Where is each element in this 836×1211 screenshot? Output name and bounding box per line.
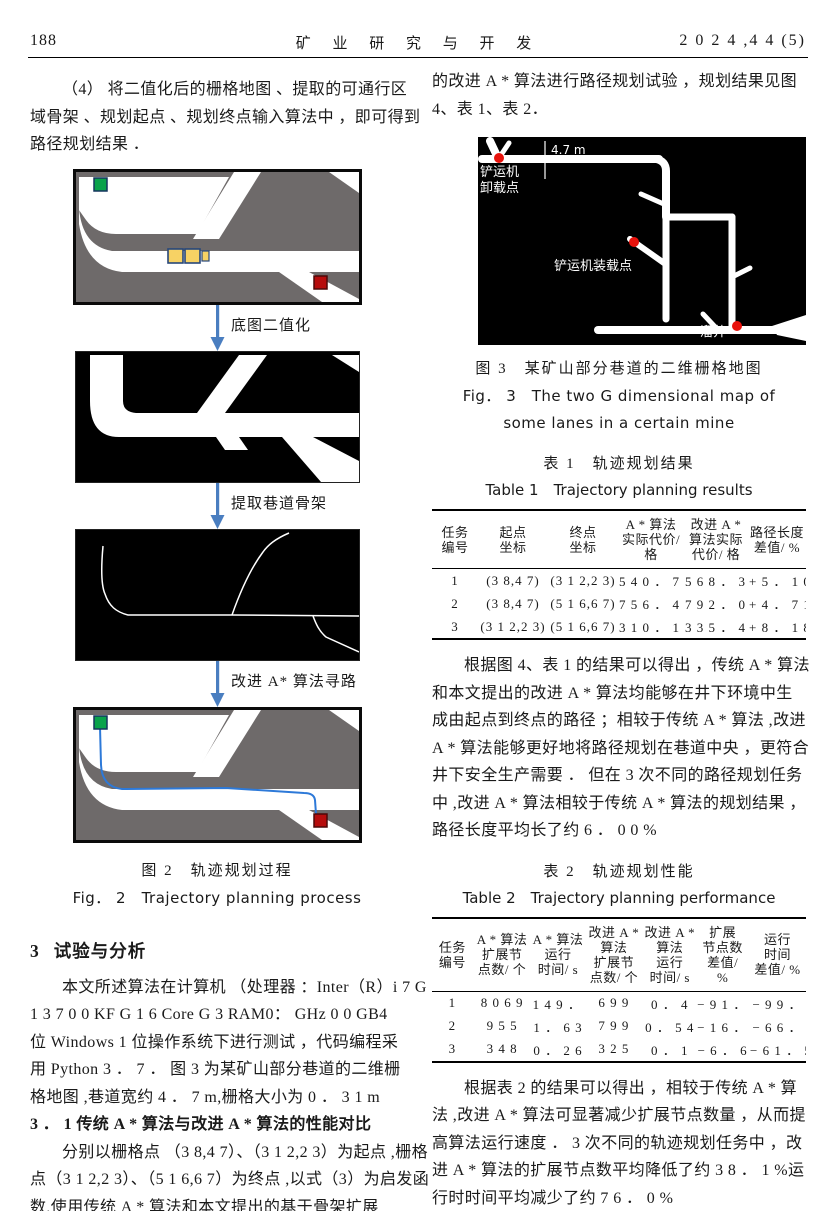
vehicle-icon bbox=[168, 249, 209, 263]
table-cell: 3 1 0 ． 1 0 bbox=[618, 615, 684, 639]
table-cell: − 9 1 ． 3 bbox=[696, 991, 749, 1015]
table-cell: 0 ． 1 bbox=[643, 1038, 696, 1062]
text-line: 的改进 A * 算法进行路径规划试验 ，规划结果见图 bbox=[432, 68, 806, 96]
text-line: 中 ,改进 A * 算法相较于传统 A * 算法的规划结果 ， bbox=[432, 790, 806, 818]
table-cell: 1 bbox=[432, 991, 473, 1015]
table-cell: − 6 1 ． 5 bbox=[749, 1038, 806, 1062]
text-line: A * 算法能够更好地将路径规划在巷道中央 ，更符合 bbox=[432, 735, 806, 763]
table-cell: + 5 ． 1 0 bbox=[748, 569, 806, 593]
table-cell: 8 0 6 9 bbox=[473, 991, 532, 1015]
start-marker bbox=[94, 178, 107, 191]
text-line: 行时时间平均减少了约 7 6 ． 0 % bbox=[432, 1185, 806, 1211]
table-cell: − 9 9 ． bbox=[749, 991, 806, 1015]
figure2-binary-map-image bbox=[75, 351, 360, 483]
figure2-stack: 底图二值化 提取巷道骨架 bbox=[30, 169, 404, 912]
running-header: 188 矿 业 研 究 与 开 发 2 0 2 4 ,4 4 (5) bbox=[30, 30, 806, 54]
table-header-cell: 运行 时间 差值/ % bbox=[749, 918, 806, 992]
table1-trajectory-results: 任务 编号起点 坐标终点 坐标A * 算法 实际代价/ 格改进 A * 算法实际… bbox=[432, 509, 806, 640]
load-point-dot bbox=[629, 237, 639, 247]
table-header-cell: 路径长度 差值/ % bbox=[748, 510, 806, 569]
figure2-original-map-image bbox=[73, 169, 362, 305]
process-arrow-row: 改进 A* 算法寻路 bbox=[73, 661, 362, 707]
table-header-cell: 终点 坐标 bbox=[548, 510, 618, 569]
arrow-step-label: 提取巷道骨架 bbox=[231, 492, 327, 513]
table1-title-zh: 表 1 轨迹规划结果 bbox=[432, 451, 806, 477]
orepass-dot bbox=[732, 321, 742, 331]
text-line: 格地图 ,巷道宽约 4 ． 7 m,栅格大小为 0 ． 3 1 m bbox=[30, 1084, 404, 1112]
paragraph: （4） 将二值化后的栅格地图 、提取的可通行区 域骨架 、规划起点 、规划终点输… bbox=[30, 76, 404, 159]
table-cell: 6 9 9 bbox=[584, 991, 643, 1015]
table-cell: 1 ． 6 3 bbox=[532, 1015, 585, 1038]
down-arrow-icon bbox=[210, 661, 225, 707]
table-cell: 9 5 5 bbox=[473, 1015, 532, 1038]
table-header-cell: 改进 A * 算法 扩展节 点数/ 个 bbox=[584, 918, 643, 992]
table1-header-row: 任务 编号起点 坐标终点 坐标A * 算法 实际代价/ 格改进 A * 算法实际… bbox=[432, 510, 806, 569]
figure2-result-map-image bbox=[73, 707, 362, 843]
mine-lane-map: 4.7 m 铲运机 卸载点 铲运机装载点 溜井 bbox=[478, 137, 806, 345]
table-cell: 1 4 9 ． 4 3 bbox=[532, 991, 585, 1015]
table-header-cell: 任务 编号 bbox=[432, 918, 473, 992]
header-rule bbox=[28, 57, 808, 58]
text-line: 4、表 1、表 2． bbox=[432, 96, 806, 124]
table-header-cell: 任务 编号 bbox=[432, 510, 478, 569]
goal-marker bbox=[314, 276, 327, 289]
table-header-cell: A * 算法 扩展节 点数/ 个 bbox=[473, 918, 532, 992]
table-cell: 5 6 8 ． 3 4 bbox=[684, 569, 748, 593]
text-line: 根据表 2 的结果可以得出 ，相较于传统 A * 算 bbox=[432, 1075, 806, 1103]
figure2-caption-en: Fig． 2 Trajectory planning process bbox=[30, 885, 404, 912]
load-label: 铲运机装载点 bbox=[554, 259, 632, 274]
table-cell: 7 5 6 ． 4 1 bbox=[618, 592, 684, 615]
table-header-cell: 改进 A * 算法实际 代价/ 格 bbox=[684, 510, 748, 569]
paragraph: 本文所述算法在计算机 （处理器 ：Inter（R）i 7 G 1 3 7 0 0… bbox=[30, 974, 404, 1211]
paragraph: 根据图 4、表 1 的结果可以得出 ，传统 A * 算法 和本文提出的改进 A … bbox=[432, 652, 806, 845]
table-cell: − 6 ． 6 bbox=[696, 1038, 749, 1062]
text-line: 路径规划结果 ． bbox=[30, 131, 404, 159]
map-binarized bbox=[76, 352, 359, 482]
text-line: 和本文提出的改进 A * 算法均能够在井下环境中生 bbox=[432, 680, 806, 708]
orepass-label: 溜井 bbox=[700, 325, 726, 340]
text-line: 1 3 7 0 0 KF G 1 6 Core G 3 RAM0： GHz 0 … bbox=[30, 1001, 404, 1029]
text-line: 域骨架 、规划起点 、规划终点输入算法中 ，即可得到 bbox=[30, 104, 404, 132]
paragraph: 的改进 A * 算法进行路径规划试验 ，规划结果见图 4、表 1、表 2． bbox=[432, 68, 806, 123]
down-arrow-icon bbox=[210, 305, 225, 351]
down-arrow-icon bbox=[210, 483, 225, 529]
table2-title-en: Table 2 Trajectory planning performance bbox=[432, 885, 806, 911]
table-cell: (5 1 6,6 7) bbox=[548, 592, 618, 615]
table-row: 2(3 8,4 7)(5 1 6,6 7)7 5 6 ． 4 17 9 2 ． … bbox=[432, 592, 806, 615]
paragraph: 根据表 2 的结果可以得出 ，相较于传统 A * 算 法 ,改进 A * 算法可… bbox=[432, 1075, 806, 1211]
table2-trajectory-performance: 任务 编号A * 算法 扩展节 点数/ 个A * 算法 运行 时间/ s改进 A… bbox=[432, 917, 806, 1063]
text-line: 高算法运行速度 ． 3 次不同的轨迹规划任务中 ，改 bbox=[432, 1130, 806, 1158]
map-skeleton bbox=[76, 530, 359, 660]
goal-marker bbox=[314, 814, 327, 827]
text-line: 点（3 1 2,2 3）、（5 1 6,6 7）为终点 ,以式（3）为启发函 bbox=[30, 1166, 404, 1194]
text-line: 数,使用传统 A * 算法和本文提出的基于骨架扩展 bbox=[30, 1194, 404, 1211]
table-row: 33 4 80 ． 2 63 2 50 ． 1− 6 ． 6− 6 1 ． 5 bbox=[432, 1038, 806, 1062]
process-arrow-row: 提取巷道骨架 bbox=[73, 483, 362, 529]
table-cell: (3 1 2,2 3) bbox=[548, 569, 618, 593]
text-line: 法 ,改进 A * 算法可显著减少扩展节点数量 ，从而提 bbox=[432, 1102, 806, 1130]
table1-body: 1(3 8,4 7)(3 1 2,2 3)5 4 0 ． 7 85 6 8 ． … bbox=[432, 569, 806, 640]
process-arrow-row: 底图二值化 bbox=[73, 305, 362, 351]
unload-label-line1: 铲运机 bbox=[480, 165, 519, 180]
table-cell: 3 3 5 ． 4 7 bbox=[684, 615, 748, 639]
text-line: 分别以栅格点 （3 8,4 7）、（3 1 2,2 3）为起点 ,栅格 bbox=[30, 1139, 404, 1167]
figure2-skeleton-image bbox=[75, 529, 360, 661]
figure3-caption-zh: 图 3 某矿山部分巷道的二维栅格地图 bbox=[432, 355, 806, 383]
text-line: 进 A * 算法的扩展节点数平均降低了约 3 8 ． 1 %运 bbox=[432, 1157, 806, 1185]
text-line: 根据图 4、表 1 的结果可以得出 ，传统 A * 算法 bbox=[432, 652, 806, 680]
table-cell: 3 4 8 bbox=[473, 1038, 532, 1062]
table-cell: 2 bbox=[432, 1015, 473, 1038]
issue-info: 2 0 2 4 ,4 4 (5) bbox=[679, 32, 806, 50]
section-number: 3 bbox=[30, 941, 40, 961]
table-header-cell: 改进 A * 算法 运行 时间/ s bbox=[643, 918, 696, 992]
left-column: （4） 将二值化后的栅格地图 、提取的可通行区 域骨架 、规划起点 、规划终点输… bbox=[30, 68, 404, 1211]
table-cell: (3 1 2,2 3) bbox=[478, 615, 548, 639]
paper-page: 188 矿 业 研 究 与 开 发 2 0 2 4 ,4 4 (5) （4） 将… bbox=[0, 0, 836, 1211]
scale-label: 4.7 m bbox=[551, 143, 586, 157]
map-planned-path bbox=[76, 710, 359, 840]
table-cell: 7 9 2 ． 0 2 bbox=[684, 592, 748, 615]
text-line: 用 Python 3 ． 7 ． 图 3 为某矿山部分巷道的二维栅 bbox=[30, 1056, 404, 1084]
figure3-caption-en-line2: some lanes in a certain mine bbox=[432, 410, 806, 437]
table-cell: (5 1 6,6 7) bbox=[548, 615, 618, 639]
table-cell: − 1 6 ． 3 bbox=[696, 1015, 749, 1038]
table-cell: 3 2 5 bbox=[584, 1038, 643, 1062]
text-line: 井下安全生产需要 ． 但在 3 次不同的路径规划任务 bbox=[432, 762, 806, 790]
table-cell: 5 4 0 ． 7 8 bbox=[618, 569, 684, 593]
table-cell: 7 9 9 bbox=[584, 1015, 643, 1038]
section-heading: 3试验与分析 bbox=[30, 936, 404, 966]
table-cell: 0 ． 4 bbox=[643, 991, 696, 1015]
table-cell: − 6 6 ． bbox=[749, 1015, 806, 1038]
unload-label-line2: 卸载点 bbox=[480, 180, 519, 196]
table-cell: 2 bbox=[432, 592, 478, 615]
text-line: 本文所述算法在计算机 （处理器 ：Inter（R）i 7 G bbox=[30, 974, 404, 1002]
table-row: 1(3 8,4 7)(3 1 2,2 3)5 4 0 ． 7 85 6 8 ． … bbox=[432, 569, 806, 593]
subsection-heading: 3 ． 1 传统 A * 算法与改进 A * 算法的性能对比 bbox=[30, 1111, 404, 1139]
table1-title-en: Table 1 Trajectory planning results bbox=[432, 477, 806, 503]
table-row: 18 0 6 91 4 9 ． 4 36 9 90 ． 4− 9 1 ． 3− … bbox=[432, 991, 806, 1015]
figure2-caption-zh: 图 2 轨迹规划过程 bbox=[30, 857, 404, 885]
start-marker bbox=[94, 716, 107, 729]
table-cell: 0 ． 5 4 bbox=[643, 1015, 696, 1038]
arrow-step-label: 底图二值化 bbox=[231, 314, 311, 335]
table2-header-row: 任务 编号A * 算法 扩展节 点数/ 个A * 算法 运行 时间/ s改进 A… bbox=[432, 918, 806, 992]
table-cell: + 8 ． 1 8 bbox=[748, 615, 806, 639]
right-column: 的改进 A * 算法进行路径规划试验 ，规划结果见图 4、表 1、表 2． bbox=[432, 68, 806, 1211]
table-header-cell: 起点 坐标 bbox=[478, 510, 548, 569]
table-cell: 3 bbox=[432, 1038, 473, 1062]
table-row: 3(3 1 2,2 3)(5 1 6,6 7)3 1 0 ． 1 03 3 5 … bbox=[432, 615, 806, 639]
unload-point-dot bbox=[494, 153, 504, 163]
table-header-cell: A * 算法 实际代价/ 格 bbox=[618, 510, 684, 569]
section-title: 试验与分析 bbox=[54, 941, 147, 961]
table2-body: 18 0 6 91 4 9 ． 4 36 9 90 ． 4− 9 1 ． 3− … bbox=[432, 991, 806, 1062]
table-row: 29 5 51 ． 6 37 9 90 ． 5 4− 1 6 ． 3− 6 6 … bbox=[432, 1015, 806, 1038]
map-original bbox=[76, 172, 359, 302]
arrow-step-label: 改进 A* 算法寻路 bbox=[231, 670, 357, 691]
table-cell: 1 bbox=[432, 569, 478, 593]
table2-title-zh: 表 2 轨迹规划性能 bbox=[432, 859, 806, 885]
table-cell: (3 8,4 7) bbox=[478, 592, 548, 615]
table-cell: + 4 ． 7 1 bbox=[748, 592, 806, 615]
text-line: 成由起点到终点的路径 ；相较于传统 A * 算法 ,改进 bbox=[432, 707, 806, 735]
figure3-caption-en-line1: Fig． 3 The two G dimensional map of bbox=[432, 383, 806, 410]
table-header-cell: 扩展 节点数 差值/ % bbox=[696, 918, 749, 992]
table-cell: (3 8,4 7) bbox=[478, 569, 548, 593]
table-cell: 3 bbox=[432, 615, 478, 639]
figure3-grid-map-image: 4.7 m 铲运机 卸载点 铲运机装载点 溜井 bbox=[478, 137, 806, 345]
table-header-cell: A * 算法 运行 时间/ s bbox=[532, 918, 585, 992]
text-line: 路径长度平均长了约 6 ． 0 0 % bbox=[432, 817, 806, 845]
text-line: （4） 将二值化后的栅格地图 、提取的可通行区 bbox=[30, 76, 404, 104]
text-line: 位 Windows 1 位操作系统下进行测试 ，代码编程采 bbox=[30, 1029, 404, 1057]
table-cell: 0 ． 2 6 bbox=[532, 1038, 585, 1062]
